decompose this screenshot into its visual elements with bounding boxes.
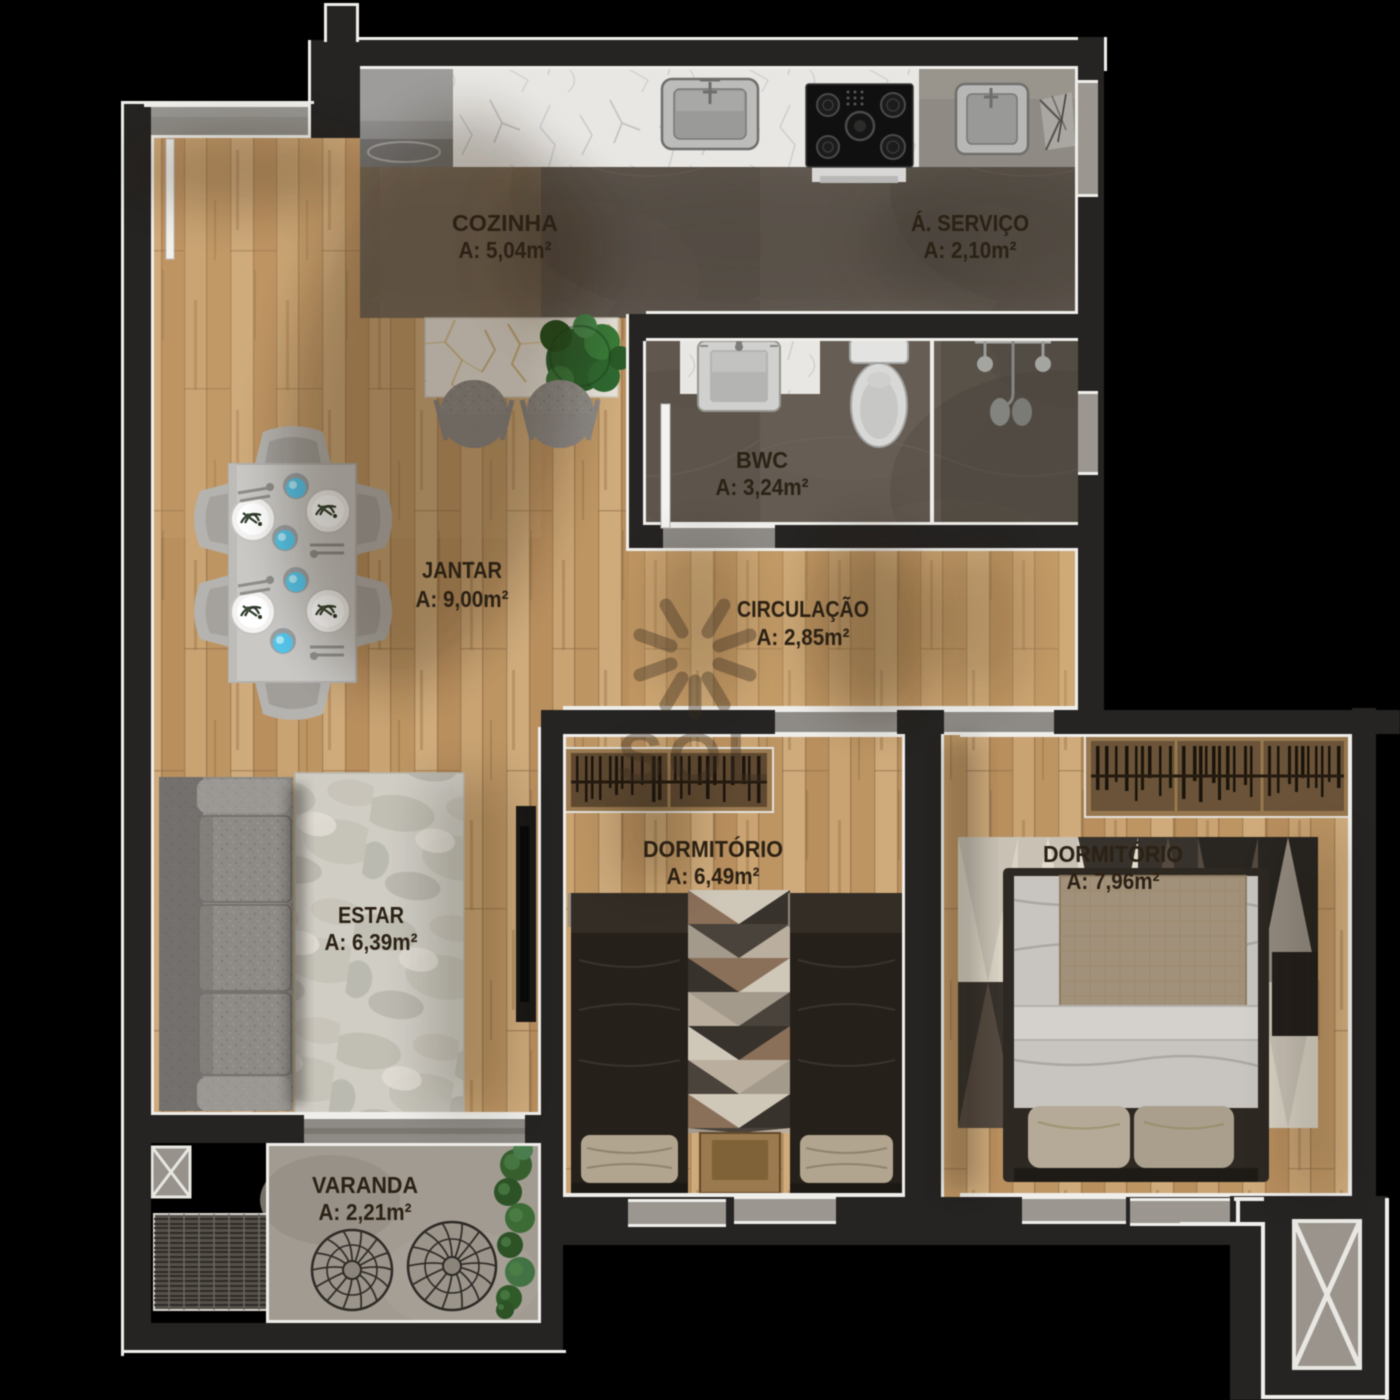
svg-text:SOL: SOL [617,719,773,797]
svg-text:A: 3,24m²: A: 3,24m² [716,474,809,500]
svg-text:A: 2,21m²: A: 2,21m² [319,1199,412,1225]
svg-text:A: 7,96m²: A: 7,96m² [1067,868,1160,894]
svg-text:CIRCULAÇÃO: CIRCULAÇÃO [737,595,869,622]
svg-text:BWC: BWC [736,447,788,473]
svg-text:VARANDA: VARANDA [312,1172,418,1198]
svg-text:A: 2,85m²: A: 2,85m² [757,624,850,650]
svg-text:A: 2,10m²: A: 2,10m² [924,237,1017,263]
svg-text:A: 6,39m²: A: 6,39m² [325,929,418,955]
svg-text:DORMITÓRIO: DORMITÓRIO [643,835,783,862]
svg-text:ESTAR: ESTAR [338,902,404,928]
svg-text:JANTAR: JANTAR [422,557,502,583]
svg-text:COZINHA: COZINHA [452,210,558,236]
svg-text:DORMITÓRIO: DORMITÓRIO [1043,840,1183,867]
svg-text:A: 5,04m²: A: 5,04m² [459,237,552,263]
svg-text:Á. SERVIÇO: Á. SERVIÇO [911,209,1029,236]
svg-text:A: 9,00m²: A: 9,00m² [416,586,509,612]
svg-text:A: 6,49m²: A: 6,49m² [667,863,760,889]
